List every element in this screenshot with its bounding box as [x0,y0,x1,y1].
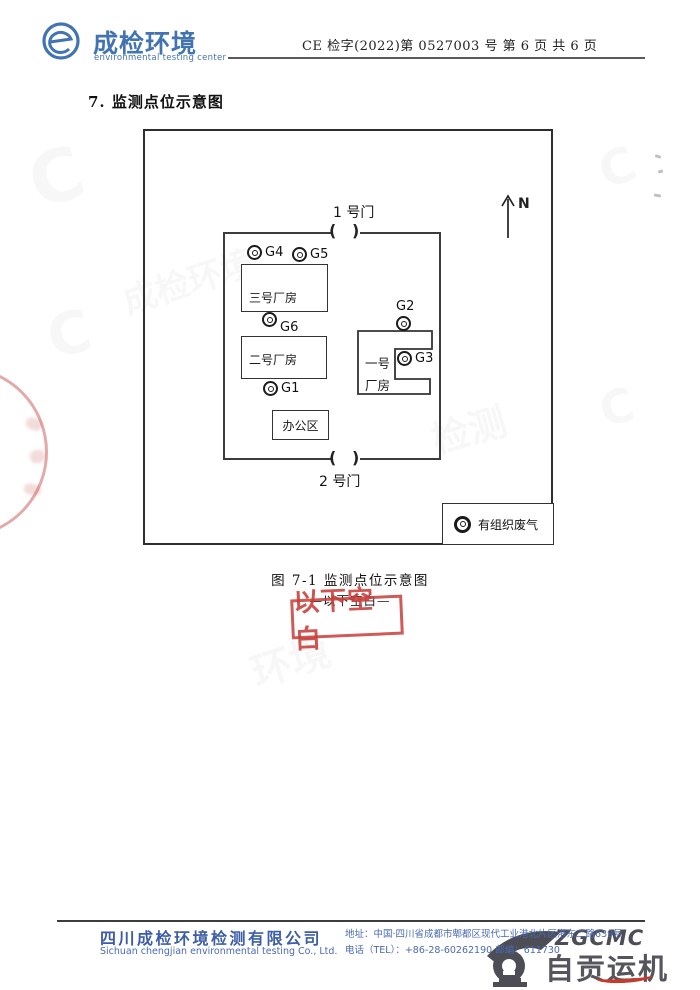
gate1-label: 1 号门 [333,202,374,222]
monitor-point-icon-g3 [397,351,412,366]
inner-ring [401,321,407,327]
building-2-label: 二号厂房 [249,351,297,368]
building-1-label-line2: 厂房 [365,375,390,394]
gate2-paren-right: ) [352,448,359,467]
building-2: 二号厂房 [241,336,327,379]
monitor-point-icon-g1 [263,381,278,396]
organized-exhaust-icon [454,516,471,533]
footer-phone: 电话（TEL）：+86-28-60262190 邮编：611730 [345,942,560,956]
site-diagram-frame: N 1 号门 ( ) 三号厂房 二号厂房 一号 厂房 办公区 G4 G5 [143,129,553,545]
building-3: 三号厂房 [241,264,328,312]
inner-ring [297,252,303,258]
header-rule [228,57,645,59]
scan-watermark: C [594,377,640,438]
scan-watermark: C [40,296,99,373]
inner-ring [402,356,408,362]
north-label: N [518,196,530,212]
scan-watermark: C [18,129,94,225]
scan-speck [658,170,664,174]
monitor-point-label-g6: G6 [280,320,298,335]
scan-watermark: C [591,136,643,201]
document-number: CE 检字(2022)第 0527003 号 第 6 页 共 6 页 [302,35,597,54]
office-area: 办公区 [272,410,329,440]
inner-ring [252,250,258,256]
gate2-paren-left: ( [329,448,336,467]
monitor-point-label-g2: G2 [396,299,414,314]
footer-company-name-en: Sichuan chengjian environmental testing … [100,946,337,957]
inner-ring [460,521,466,527]
monitor-point-icon-g4 [247,245,262,260]
gate1-paren-left: ( [329,221,336,240]
building-1-label-line1: 一号 [365,353,390,372]
office-area-label: 办公区 [282,417,318,434]
gate2-label: 2 号门 [319,471,360,491]
monitor-point-icon-g2 [396,316,411,331]
building-3-label: 三号厂房 [249,289,297,306]
scan-speck [654,193,661,197]
company-logo-subtitle: environmental testing center [94,53,226,63]
monitor-point-icon-g6 [262,312,277,327]
monitor-point-label-g4: G4 [265,245,283,260]
inner-ring [267,317,273,323]
gate1-paren-right: ) [352,221,359,240]
legend-box: 有组织废气 [442,503,554,545]
scan-speck [655,154,662,159]
company-logo-icon [40,20,84,64]
blank-below-stamp: 以下空白 [290,595,404,640]
footer-address: 地址：中国·四川省成都市郫都区现代工业港北片区港东二路639号 [345,926,623,940]
monitor-point-icon-g5 [292,247,307,262]
report-page: C 成检环境 C C 检测 环境 C 成检环境 environmental te… [0,0,700,990]
section-title: 7. 监测点位示意图 [88,91,224,112]
legend-label: 有组织废气 [478,516,538,533]
north-arrow-icon [497,193,519,241]
monitor-point-label-g5: G5 [310,247,328,262]
monitor-point-label-g1: G1 [281,381,299,396]
monitor-point-label-g3: G3 [415,351,433,366]
inner-ring [268,386,274,392]
